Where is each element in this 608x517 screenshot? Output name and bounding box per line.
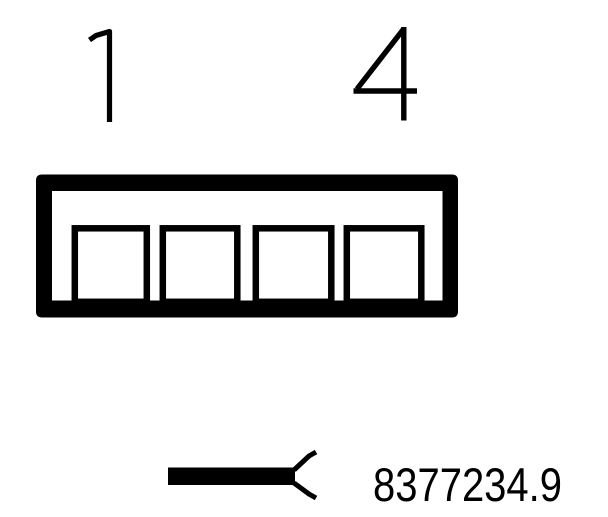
svg-text:8377234.9: 8377234.9 bbox=[373, 459, 562, 512]
